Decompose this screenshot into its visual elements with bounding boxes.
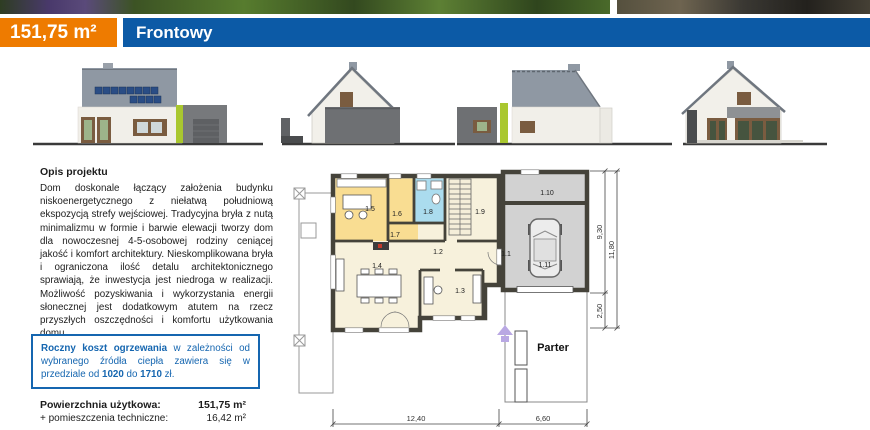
pergola-post xyxy=(294,335,305,346)
room-label: 1.11 xyxy=(538,262,551,269)
photo-garden xyxy=(0,0,610,14)
area-badge: 151,75 m² xyxy=(0,18,117,47)
heating-between: do xyxy=(124,369,140,380)
elevation-drawings xyxy=(0,60,870,160)
table-row: + pomieszczenia techniczne: 16,42 m² xyxy=(40,413,246,424)
table-row: Powierzchnia użytkowa: 151,75 m² xyxy=(40,399,246,411)
heating-suffix: zł. xyxy=(162,369,175,380)
room-label: 1.10 xyxy=(540,190,554,197)
room-label: 1.8 xyxy=(423,209,433,216)
dimension-label: 9,30 xyxy=(595,225,604,240)
elevation-side-left xyxy=(281,62,455,144)
heating-cost-high: 1710 xyxy=(140,369,162,380)
dimension-label: 11,80 xyxy=(607,241,616,259)
floor-plan: 1.1 1.2 1.3 1.4 1.5 1.6 1.7 1.8 1.9 1.10… xyxy=(285,163,645,430)
catalog-page: { "header": { "area_badge": "151,75 m²",… xyxy=(0,0,870,430)
heating-cost-box: Roczny koszt ogrzewania w zależności od … xyxy=(31,334,260,389)
project-description: Opis projektu Dom doskonale łączący zało… xyxy=(40,166,273,340)
terrace-outline xyxy=(294,188,333,393)
dimension-label: 6,60 xyxy=(536,414,551,423)
room-kitchen-fill xyxy=(336,179,389,242)
pergola-post xyxy=(294,188,305,199)
room-label: 1.4 xyxy=(372,263,382,270)
elevation-side-right xyxy=(457,64,672,144)
description-heading: Opis projektu xyxy=(40,166,273,178)
staircase xyxy=(449,179,471,235)
elevation-rear xyxy=(682,61,827,144)
areas-table: Powierzchnia użytkowa: 151,75 m² + pomie… xyxy=(40,399,246,426)
photo-driveway xyxy=(617,0,870,14)
area-row-label: + pomieszczenia techniczne: xyxy=(40,413,168,424)
room-label: 1.5 xyxy=(365,206,375,213)
garage-door xyxy=(517,287,573,293)
fireplace xyxy=(373,242,389,250)
area-row-value: 16,42 m² xyxy=(207,413,246,424)
area-row-label: Powierzchnia użytkowa: xyxy=(40,399,161,411)
project-title-bar: Frontowy xyxy=(123,18,870,47)
elevation-front xyxy=(33,63,263,144)
heating-intro: Roczny koszt ogrzewania xyxy=(41,343,167,354)
room-label: 1.2 xyxy=(433,249,443,256)
room-label: 1.9 xyxy=(475,209,485,216)
room-label: 1.1 xyxy=(501,251,511,258)
room-label: 1.7 xyxy=(390,232,400,239)
description-body: Dom doskonale łączący założenia budynku … xyxy=(40,182,273,340)
floor-label: Parter xyxy=(537,342,570,354)
area-row-value: 151,75 m² xyxy=(198,399,246,411)
heating-cost-low: 1020 xyxy=(102,369,124,380)
dimension-label: 12,40 xyxy=(407,414,426,423)
dimension-label: 2,50 xyxy=(595,304,604,319)
room-label: 1.6 xyxy=(392,211,402,218)
room-label: 1.3 xyxy=(455,288,465,295)
